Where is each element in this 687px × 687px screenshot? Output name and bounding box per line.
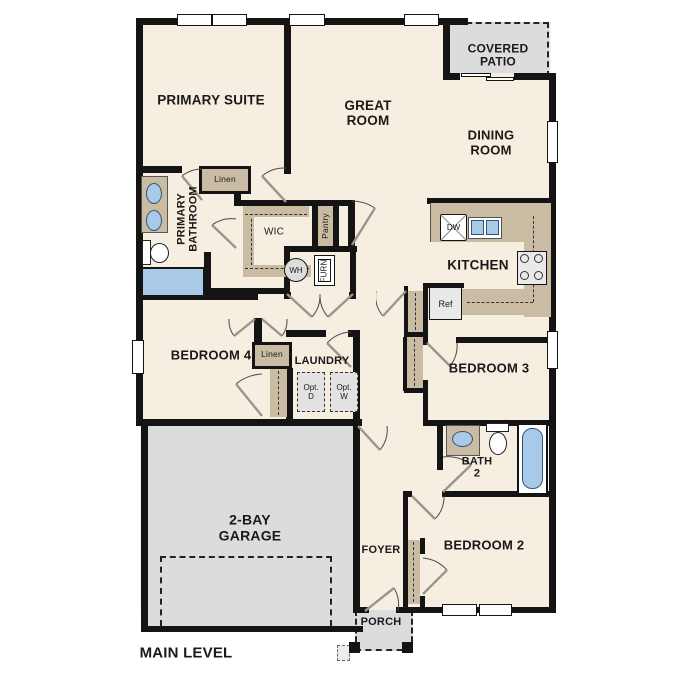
bathtub2 bbox=[522, 428, 543, 489]
dishwasher-label: DW bbox=[447, 223, 460, 232]
coat-closet-door bbox=[376, 288, 408, 322]
bedroom2-door bbox=[410, 494, 446, 524]
window bbox=[132, 340, 144, 374]
window bbox=[177, 14, 212, 26]
room-label-bedroom3: BEDROOM 3 bbox=[449, 362, 530, 377]
bath2-sink bbox=[452, 431, 473, 447]
shelf-line bbox=[278, 371, 279, 415]
sink-basin bbox=[471, 220, 484, 235]
vanity-sink bbox=[146, 183, 162, 204]
garage-door-outline bbox=[160, 556, 332, 626]
burner bbox=[520, 254, 529, 263]
wall bbox=[136, 166, 182, 173]
burner bbox=[534, 254, 543, 263]
optional-dryer: Opt. D bbox=[297, 372, 325, 412]
refrigerator-label: Ref bbox=[438, 299, 452, 309]
window bbox=[442, 604, 477, 616]
optional-washer: Opt. W bbox=[330, 372, 358, 412]
room-label-garage: 2-BAY GARAGE bbox=[205, 512, 295, 543]
window bbox=[212, 14, 247, 26]
bedroom4-door bbox=[230, 372, 264, 418]
room-label-wic: WIC bbox=[264, 226, 284, 237]
wic-shelf bbox=[243, 206, 309, 217]
room-label-covered-patio: COVERED PATIO bbox=[455, 43, 541, 70]
closet-label-pantry: Pantry bbox=[321, 213, 331, 239]
room-label-porch: PORCH bbox=[361, 616, 402, 628]
wall bbox=[420, 538, 425, 554]
floor-plan: DW Ref Opt. D Opt. W WH FURN bbox=[0, 0, 687, 687]
refrigerator: Ref bbox=[429, 287, 462, 320]
shelf-line bbox=[413, 542, 414, 602]
slider-panel bbox=[486, 77, 514, 81]
wall bbox=[443, 18, 450, 80]
garage-entry-door bbox=[356, 424, 388, 458]
vanity-sink bbox=[146, 210, 162, 231]
window bbox=[547, 121, 558, 163]
utility-closet-doors bbox=[284, 293, 356, 325]
water-heater: WH bbox=[284, 258, 308, 282]
room-label-primary-suite: PRIMARY SUITE bbox=[156, 92, 266, 107]
toilet-bowl bbox=[150, 243, 169, 263]
room-label-kitchen: KITCHEN bbox=[447, 257, 508, 272]
bedroom3-closet bbox=[407, 337, 423, 388]
sink-basin bbox=[486, 220, 499, 235]
wall bbox=[456, 337, 551, 343]
furnace-label: FURN bbox=[321, 259, 330, 282]
room-label-bedroom2: BEDROOM 2 bbox=[444, 539, 525, 554]
wall bbox=[136, 419, 362, 426]
wall bbox=[350, 246, 356, 298]
shelf-line bbox=[251, 219, 252, 265]
primary-bath-door bbox=[204, 218, 238, 250]
porch-post bbox=[402, 642, 413, 653]
optional-washer-label: Opt. W bbox=[334, 383, 354, 401]
closet-label-linen-lower: Linen bbox=[261, 350, 283, 360]
hall-door bbox=[349, 200, 379, 248]
bedroom2-closet bbox=[408, 540, 420, 604]
wall bbox=[284, 18, 291, 174]
porch-post bbox=[349, 642, 360, 653]
bedroom2-closet-door bbox=[421, 556, 453, 596]
room-label-bath2: BATH 2 bbox=[457, 456, 497, 481]
window bbox=[547, 331, 558, 369]
shelf-line bbox=[415, 293, 416, 330]
shelf-line bbox=[414, 339, 415, 386]
wall bbox=[286, 368, 293, 421]
toilet-tank bbox=[486, 423, 509, 432]
window bbox=[289, 14, 325, 26]
wall bbox=[141, 626, 363, 632]
window bbox=[404, 14, 439, 26]
wall bbox=[141, 419, 148, 632]
wic-shelf bbox=[243, 217, 254, 267]
level-title: MAIN LEVEL bbox=[140, 646, 233, 663]
primary-suite-door bbox=[254, 166, 288, 204]
hall-vestibule-door bbox=[228, 316, 258, 342]
wall bbox=[284, 246, 357, 252]
room-label-primary-bathroom: PRIMARY BATHROOM bbox=[176, 176, 201, 262]
window bbox=[479, 604, 512, 616]
burner bbox=[534, 271, 543, 280]
dishwasher: DW bbox=[440, 214, 467, 241]
optional-dryer-label: Opt. D bbox=[301, 383, 321, 401]
toilet-bowl bbox=[489, 432, 507, 455]
room-label-dining-room: DINING ROOM bbox=[456, 128, 526, 157]
room-label-foyer: FOYER bbox=[362, 544, 401, 556]
water-heater-label: WH bbox=[289, 266, 302, 275]
hall-vestibule-door bbox=[259, 316, 289, 342]
closet-label-linen-upper: Linen bbox=[214, 175, 236, 185]
room-label-bedroom4: BEDROOM 4 bbox=[171, 349, 252, 364]
room-label-laundry: LAUNDRY bbox=[295, 355, 350, 367]
front-door bbox=[362, 578, 402, 614]
wall bbox=[420, 596, 425, 610]
wall bbox=[333, 200, 339, 250]
burner bbox=[520, 271, 529, 280]
bathtub bbox=[141, 267, 205, 297]
upper-cabinet-line bbox=[467, 302, 533, 303]
room-label-great-room: GREAT ROOM bbox=[328, 98, 408, 128]
shelf-line bbox=[245, 214, 307, 215]
